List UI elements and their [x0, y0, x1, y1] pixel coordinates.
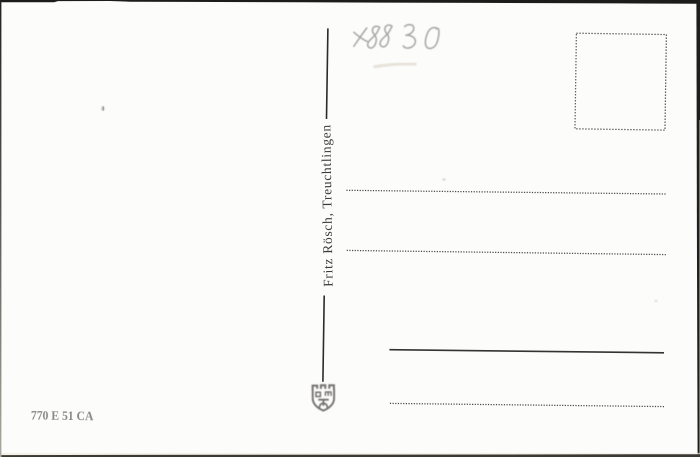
svg-text:770 E 51 CA: 770 E 51 CA [31, 408, 94, 424]
svg-text:Fritz Rösch, Treuchtlingen: Fritz Rösch, Treuchtlingen [318, 124, 335, 286]
